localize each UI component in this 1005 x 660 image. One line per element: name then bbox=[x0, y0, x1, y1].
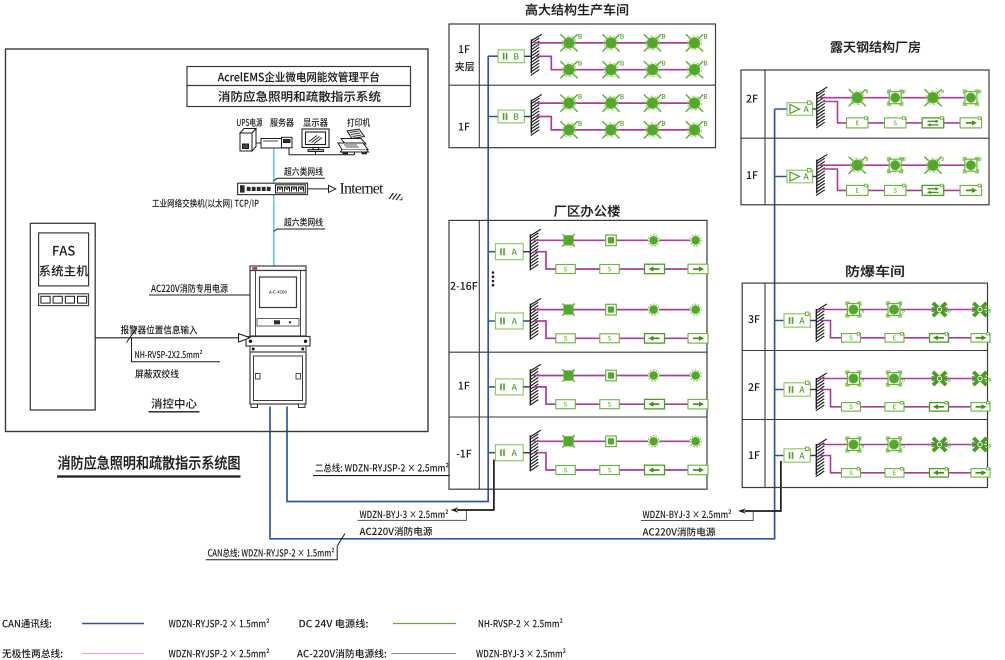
svg-text:Internet: Internet bbox=[340, 181, 385, 198]
